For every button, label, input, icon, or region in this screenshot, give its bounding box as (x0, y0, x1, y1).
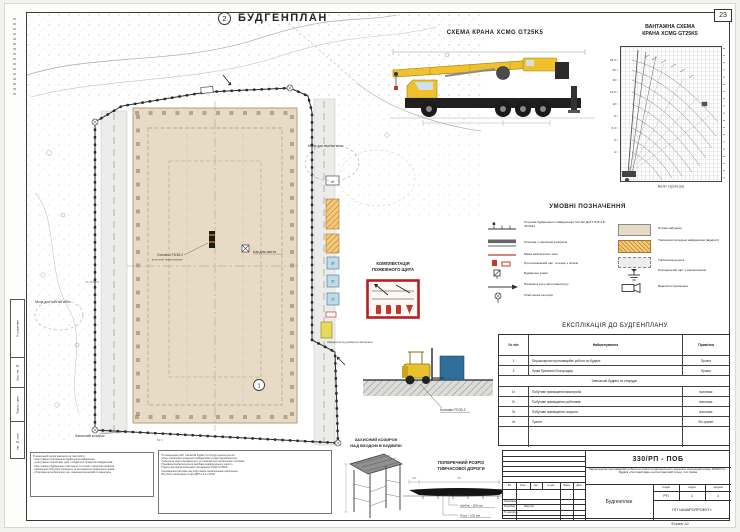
legend-item-traffic: Напрямок руху автотранспорту (524, 283, 616, 287)
rev-header-date: Дата (573, 482, 585, 489)
capacity-label-0: 25,0 т (610, 58, 619, 62)
canopy-title-2: НАД ВХОДОМ В БУДІВЛЮ (340, 443, 412, 448)
margin-label-sign-date: Підпис і дата (11, 388, 24, 421)
col-header-num: № п/п (499, 335, 529, 355)
fire-shield-title-2: ПОЖЕЖНОГО ЩИТА (358, 267, 428, 272)
crane-scheme-title: СХЕМА КРАНА XCMG GT25K5 (395, 30, 595, 36)
forklift-name-label: Komatsu FD35-2 (157, 253, 183, 257)
sheet-header: Аркуш (679, 484, 705, 491)
doc-title: Будгенплан (585, 484, 653, 520)
canopy-ref-label: Захисний козирок (75, 434, 105, 438)
wheel-wash-left-label: Місце для очистки коліс (35, 300, 71, 304)
legend-item-light: Освітлення на опорі (524, 294, 616, 298)
forklift-drawing (402, 348, 444, 385)
legend-item-temp-road: Тимчасова дорога (658, 259, 732, 263)
margin-label-approvals: Погодження (11, 300, 24, 357)
fire-shield-drawing (366, 279, 420, 319)
table-empty-row (499, 427, 729, 447)
storage-area-1 (326, 199, 339, 229)
container (440, 356, 464, 380)
legend-item-fire-shield: Протипожежний щит та ящик з піском (524, 262, 616, 266)
fire-shield-icon (492, 260, 510, 266)
capacity-label-3: 12,5 т (610, 90, 619, 94)
legend-title: УМОВНІ ПОЗНАЧЕННЯ (520, 203, 655, 210)
table-row: 1 Першочергові протиаварійні роботи по б… (499, 356, 729, 366)
road-section-title-1: ПОПЕРЕЧНИЙ РОЗРІЗ (415, 460, 507, 465)
gate-symbol (201, 86, 213, 93)
forklift-vignette: Komatsu FD30-2 (358, 334, 498, 420)
stage-value: РП (653, 491, 679, 500)
format-label: Формат А2 (640, 522, 720, 526)
load-chart-title-2: КРАНА XCMG GT25K5 (608, 31, 732, 37)
construction-drawing-screenshot: { "sheet": { "page_number": "23", "forma… (0, 0, 740, 532)
legend-item-switchboard: Розподільчий щит з заземленням (658, 269, 732, 273)
forklift-symbol (209, 231, 215, 248)
explication-table: № п/п Найменування Примітка 1 Першочерго… (498, 334, 730, 446)
legend-item-fence-canopy: Огорожа з захисним козирком (524, 241, 616, 245)
road-section-drawing: 0,5 3,5 0,5 Щебінь - 200 мм Пісок - 100 … (403, 474, 515, 526)
capacity-label-2: 16 т (612, 78, 618, 82)
title-block: Зм. Кільк. Арк. № док. Підпис Дата Перев… (502, 450, 730, 519)
col-header-note: Примітка (683, 335, 729, 355)
load-chart-title-1: ВАНТАЖНА СХЕМА (608, 24, 732, 30)
crane-scheme-drawing (385, 46, 600, 126)
canopy-drawing (344, 450, 408, 522)
cabin-2t-label: 2т (331, 280, 335, 284)
cabin-1t-label: 1т (331, 298, 335, 302)
wheel-wash-right-label: Місце для очистки коліс (308, 144, 344, 148)
sheets-value: 1 (705, 491, 731, 500)
table-section-row: Тимчасові будівлі та споруди (499, 376, 729, 387)
load-chart-curves: 25,0 т 20 т 16 т 12,5 т 10 т 8 т 6,3 т 5… (594, 44, 734, 190)
margin-stamp: Погодження Зам. інв. № Підпис і дата Інв… (10, 299, 25, 459)
organization-name: ПП «АМАРОПРОЕКТ» (653, 500, 731, 520)
capacity-label-4: 10 т (612, 102, 618, 106)
forklift-type-label: вилочний навантажувач (152, 258, 184, 262)
road-layer1-label: Щебінь - 200 мм (460, 504, 483, 508)
vignette-machine-label: Komatsu FD30-2 (440, 408, 466, 412)
capacity-label-5: 8 т (614, 114, 619, 118)
legend-icons (486, 219, 520, 303)
legend-item-cctv: Відеоспостереження (658, 285, 732, 289)
cabin-4t-label: 4т (331, 180, 335, 184)
building-footprint (127, 101, 303, 431)
legend-item-storage: Тимчасові складські майданчики (відкриті… (658, 239, 732, 243)
col-header-name: Найменування (529, 335, 683, 355)
left-dims-label: 4.5 13.5 7.8 (85, 280, 99, 284)
role-norm-control: Н. контроль (503, 510, 527, 515)
explication-title: ЕКСПЛІКАЦІЯ ДО БУДГЕНПЛАНУ (520, 323, 710, 329)
cabin-3t-label: 3т (331, 262, 335, 266)
fire-shield-title-1: КОМПЛЕКТАЦІЯ (358, 261, 428, 266)
capacity-label-1: 20 т (612, 68, 618, 72)
construction-sign-icon (494, 270, 500, 279)
rev-header-zm: Зм. (503, 482, 516, 489)
swatch-storage-area (618, 240, 651, 253)
legend-item-building-spot: Пляма забудови (658, 227, 732, 231)
crane-boom (393, 60, 535, 77)
crane-counterweight (555, 62, 569, 79)
legend-item-fence: Огорожа будівельного майданчика h=2,0м Д… (524, 221, 616, 229)
exit-arrow (337, 357, 345, 365)
fire-point-symbol (326, 312, 336, 317)
fence-canopy-icon (488, 240, 516, 247)
road-layer2-label: Пісок - 100 мм (460, 514, 480, 518)
sheets-header: Аркушів (705, 484, 731, 491)
storage-area-2 (326, 234, 339, 253)
bottom-dim-label: 52.1 (157, 438, 163, 442)
table-row: 3т Побутове приміщення охорони вагончик (499, 407, 729, 417)
table-row: 1т Побутове приміщення виконроба вагончи… (499, 387, 729, 397)
rev-header-kilk: Кільк. (516, 482, 530, 489)
crane-hook (394, 86, 398, 90)
load-chart-xlabel: Виліт стріли (м) (658, 185, 684, 189)
table-row: 4т Туалет біо туалет (499, 417, 729, 427)
table-row: 2т Побутове приміщення робітників вагонч… (499, 397, 729, 407)
margin-marks (13, 18, 16, 96)
light-pole-icon (495, 293, 501, 303)
swatch-building-spot (618, 224, 651, 236)
road-dim-mid: 3,5 (457, 476, 461, 480)
cctv-icon (620, 283, 644, 293)
capacity-label-7: 5 т (614, 138, 619, 142)
earth-switchboard-icon (624, 269, 644, 282)
swatch-temp-road (618, 257, 651, 268)
legend-item-signs: Будівельні знаки (524, 272, 616, 276)
table-row: 2 Храм Пресвятої Богородиці Проект (499, 366, 729, 376)
outrigger (571, 86, 577, 110)
capacity-label-8: 4 т (614, 150, 619, 154)
notes-box-2: По закінченню робіт тимчасові будівлі та… (158, 450, 332, 514)
trash-bin-label: Бак для сміття (253, 250, 276, 254)
legend-item-danger-zone: Межа небезпечної зони (524, 253, 616, 257)
fence-icon (488, 223, 516, 230)
capacity-label-6: 6,3 т (612, 126, 619, 130)
traffic-arrow-icon (488, 285, 518, 290)
crane-position-symbol (321, 322, 332, 338)
page-number-box: 23 (714, 9, 732, 22)
sheet-value: 1 (679, 491, 705, 500)
road-section-title-2: ТИМЧАСОВОЇ ДОРОГИ (415, 466, 507, 471)
rev-header-doc: № док. (542, 482, 560, 489)
rev-header-ark: Арк. (530, 482, 542, 489)
stage-header: Стадія (653, 484, 679, 491)
rev-header-sign: Підпис (560, 482, 573, 489)
building-callout-number: 1 (257, 384, 260, 390)
notes-box-1: В зазначений період виконуються такі роб… (30, 452, 154, 497)
margin-label-inv-repl: Зам. інв. № (11, 358, 24, 387)
document-code: 330/РП - ПОБ (585, 451, 731, 467)
margin-label-inv-orig: Інв. № ориг. (11, 422, 24, 460)
canopy-title-1: ЗАХИСНИЙ КОЗИРОК (340, 437, 412, 442)
project-description: Першочергові протиаварійні роботи на пам… (587, 468, 729, 483)
road-dim-left: 0,5 (412, 476, 416, 480)
